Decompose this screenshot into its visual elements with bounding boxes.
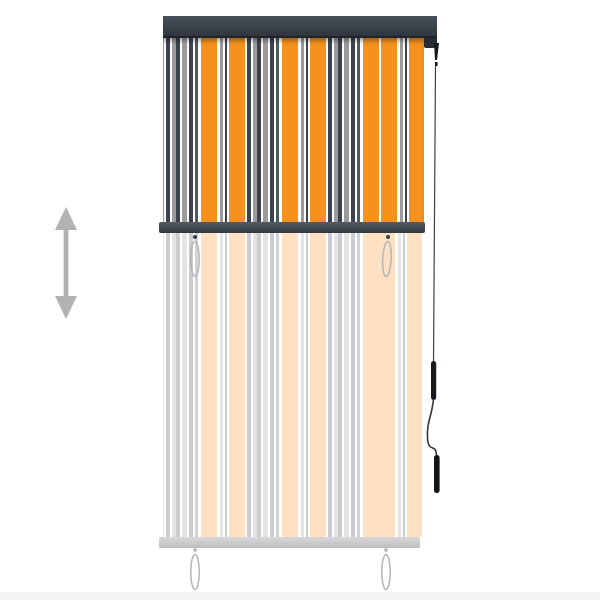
operating-cord-assembly xyxy=(420,40,450,496)
cord-line xyxy=(434,66,436,362)
cord-wand xyxy=(431,361,436,400)
pull-loop-mid-right xyxy=(378,233,396,282)
cord-s-curve xyxy=(427,399,436,456)
cassette-top-strip xyxy=(156,8,441,16)
cassette-body xyxy=(163,16,437,38)
cord-handle xyxy=(434,455,440,493)
blind-bottom-rail xyxy=(159,222,425,233)
vertical-extension-arrow-icon xyxy=(54,207,78,319)
floor-shadow xyxy=(0,592,600,600)
cord-bead xyxy=(435,62,438,66)
cord-connector xyxy=(434,43,439,60)
blind-fabric-upper xyxy=(163,38,424,222)
pull-loop-mid-left xyxy=(187,233,203,281)
product-photo xyxy=(0,0,600,600)
pull-loop-bottom-left xyxy=(187,546,203,594)
pull-loop-bottom-right xyxy=(378,546,394,594)
